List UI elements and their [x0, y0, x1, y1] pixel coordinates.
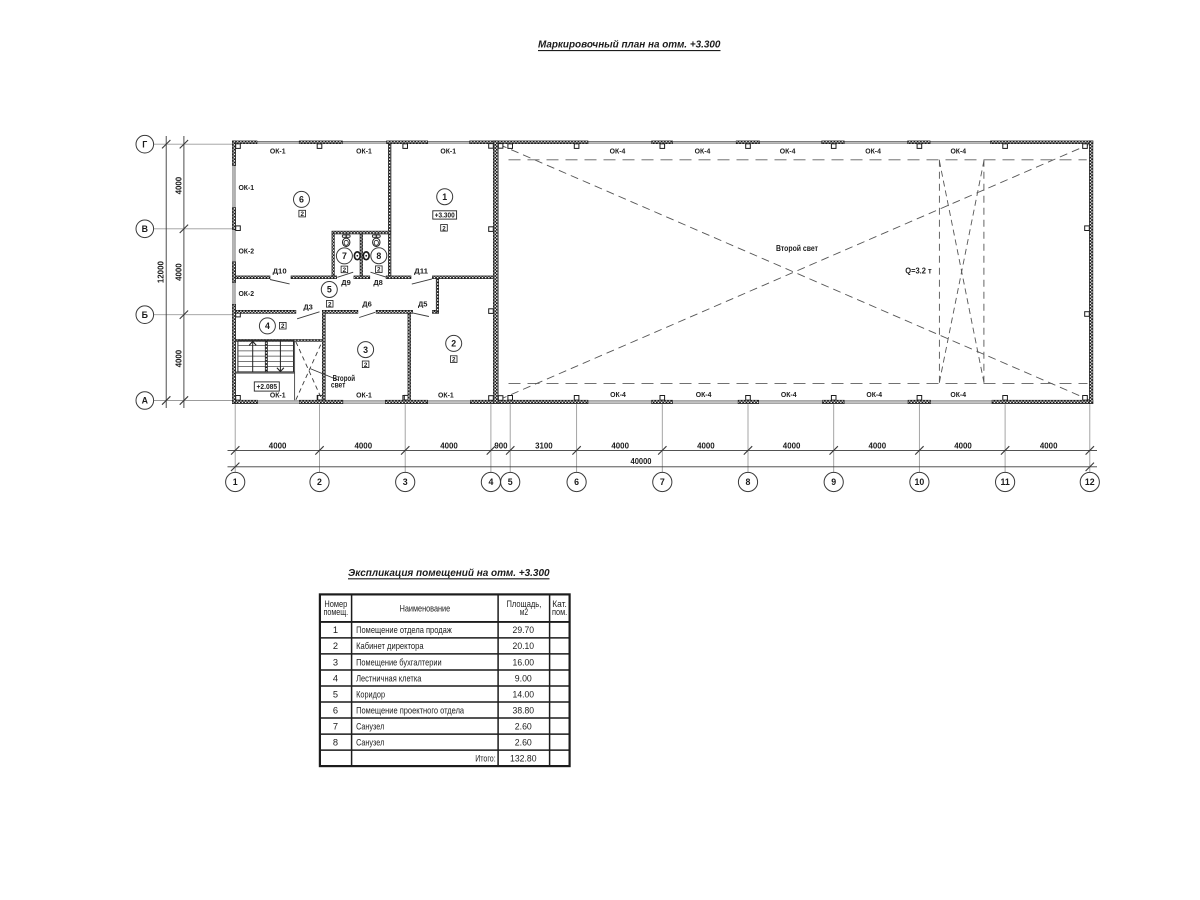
- svg-text:3: 3: [333, 657, 338, 667]
- svg-text:3: 3: [363, 345, 368, 355]
- svg-text:Кабинет директора: Кабинет директора: [356, 641, 424, 651]
- svg-text:В: В: [142, 224, 148, 234]
- svg-text:7: 7: [333, 721, 338, 731]
- svg-text:ОК-4: ОК-4: [780, 146, 796, 155]
- svg-text:Лестничная клетка: Лестничная клетка: [356, 673, 422, 683]
- svg-text:6: 6: [333, 705, 338, 715]
- svg-text:2: 2: [452, 357, 456, 364]
- svg-text:ОК-4: ОК-4: [950, 146, 966, 155]
- svg-text:132.80: 132.80: [510, 753, 537, 763]
- svg-text:2.60: 2.60: [515, 721, 532, 731]
- svg-text:ОК-4: ОК-4: [696, 390, 712, 399]
- svg-text:ОК-1: ОК-1: [356, 391, 372, 400]
- svg-text:4000: 4000: [174, 176, 183, 194]
- svg-text:8: 8: [376, 251, 381, 261]
- svg-text:А: А: [142, 396, 149, 406]
- svg-text:4: 4: [333, 673, 338, 683]
- svg-text:20.10: 20.10: [513, 641, 535, 651]
- svg-text:9.00: 9.00: [515, 673, 532, 683]
- svg-text:ОК-1: ОК-1: [438, 391, 454, 400]
- svg-text:ОК-4: ОК-4: [695, 146, 711, 155]
- svg-text:+2.085: +2.085: [257, 384, 278, 391]
- svg-text:4000: 4000: [611, 441, 629, 450]
- svg-text:пом.: пом.: [552, 607, 567, 617]
- svg-text:ОК-1: ОК-1: [238, 183, 254, 192]
- svg-text:Д8: Д8: [373, 278, 383, 287]
- svg-text:4000: 4000: [1040, 441, 1058, 450]
- svg-text:2: 2: [300, 211, 304, 218]
- svg-text:Второй свет: Второй свет: [776, 244, 818, 253]
- svg-text:29.70: 29.70: [513, 625, 535, 635]
- svg-text:40000: 40000: [631, 457, 652, 466]
- svg-text:4000: 4000: [869, 441, 887, 450]
- svg-text:2: 2: [451, 339, 456, 349]
- svg-text:14.00: 14.00: [513, 689, 535, 699]
- svg-text:4000: 4000: [174, 263, 183, 281]
- svg-text:ОК-4: ОК-4: [865, 146, 881, 155]
- svg-text:Наименование: Наименование: [400, 604, 451, 614]
- svg-text:2: 2: [442, 225, 446, 232]
- svg-text:11: 11: [1000, 477, 1009, 487]
- svg-text:10: 10: [915, 477, 925, 487]
- svg-text:ОК-4: ОК-4: [610, 146, 626, 155]
- svg-text:Б: Б: [142, 310, 149, 320]
- svg-text:16.00: 16.00: [513, 657, 535, 667]
- svg-text:м2: м2: [520, 607, 528, 617]
- svg-text:Д3: Д3: [303, 303, 313, 312]
- svg-text:Санузел: Санузел: [356, 737, 384, 747]
- svg-text:2: 2: [333, 641, 338, 651]
- svg-text:ОК-4: ОК-4: [781, 390, 797, 399]
- svg-text:2: 2: [364, 362, 368, 369]
- svg-text:6: 6: [574, 477, 579, 487]
- svg-text:2.60: 2.60: [515, 737, 532, 747]
- svg-text:Д6: Д6: [362, 300, 372, 309]
- svg-text:900: 900: [494, 441, 508, 450]
- svg-text:4000: 4000: [174, 349, 183, 367]
- svg-text:2: 2: [281, 323, 285, 330]
- svg-text:8: 8: [746, 477, 751, 487]
- svg-text:4: 4: [488, 477, 493, 487]
- svg-text:ОК-1: ОК-1: [270, 391, 286, 400]
- svg-text:Г: Г: [142, 139, 147, 149]
- svg-text:4000: 4000: [440, 441, 458, 450]
- svg-text:Экспликация помещений на отм.: Экспликация помещений на отм. +3.300: [348, 568, 550, 579]
- svg-text:3: 3: [403, 477, 408, 487]
- svg-text:9: 9: [831, 477, 836, 487]
- svg-text:12000: 12000: [156, 261, 165, 283]
- svg-text:8: 8: [333, 737, 338, 747]
- svg-text:12: 12: [1085, 477, 1095, 487]
- svg-text:ОК-1: ОК-1: [356, 147, 372, 156]
- svg-text:4000: 4000: [355, 441, 373, 450]
- svg-text:ОК-1: ОК-1: [270, 147, 286, 156]
- svg-text:Помещение проектного отдела: Помещение проектного отдела: [356, 705, 465, 715]
- svg-text:1: 1: [233, 477, 238, 487]
- svg-text:1: 1: [333, 625, 338, 635]
- svg-text:+3.300: +3.300: [435, 212, 455, 219]
- svg-text:2: 2: [317, 477, 322, 487]
- svg-text:Д10: Д10: [273, 267, 287, 276]
- svg-text:2: 2: [377, 267, 381, 274]
- svg-text:5: 5: [327, 285, 332, 295]
- svg-text:ОК-4: ОК-4: [610, 390, 626, 399]
- svg-text:Помещение отдела продаж: Помещение отдела продаж: [356, 625, 452, 635]
- svg-text:4: 4: [265, 321, 270, 331]
- svg-text:2: 2: [328, 301, 332, 308]
- svg-text:7: 7: [342, 251, 347, 261]
- svg-text:2: 2: [343, 267, 347, 274]
- svg-text:Итого:: Итого:: [475, 753, 496, 763]
- svg-text:1: 1: [442, 192, 447, 202]
- svg-text:Коридор: Коридор: [356, 689, 385, 699]
- svg-text:3100: 3100: [535, 441, 553, 450]
- svg-text:Маркировочный план на отм. +3.: Маркировочный план на отм. +3.300: [538, 40, 721, 51]
- svg-text:ОК-2: ОК-2: [238, 246, 254, 255]
- svg-text:Д9: Д9: [341, 278, 351, 287]
- svg-text:свет: свет: [331, 381, 346, 390]
- svg-text:помещ.: помещ.: [323, 607, 348, 617]
- svg-text:ОК-4: ОК-4: [950, 390, 966, 399]
- svg-text:7: 7: [660, 477, 665, 487]
- svg-text:4000: 4000: [954, 441, 972, 450]
- svg-text:Помещение бухгалтерии: Помещение бухгалтерии: [356, 657, 442, 667]
- svg-text:Q=3.2 т: Q=3.2 т: [905, 267, 932, 276]
- svg-text:4000: 4000: [783, 441, 801, 450]
- svg-text:ОК-4: ОК-4: [866, 390, 882, 399]
- svg-text:38.80: 38.80: [513, 705, 535, 715]
- svg-text:5: 5: [508, 477, 513, 487]
- svg-text:6: 6: [299, 195, 304, 205]
- svg-text:Санузел: Санузел: [356, 721, 384, 731]
- svg-text:ОК-1: ОК-1: [440, 147, 456, 156]
- svg-text:Д11: Д11: [414, 267, 428, 276]
- svg-text:4000: 4000: [269, 441, 287, 450]
- svg-text:Д5: Д5: [418, 300, 428, 309]
- svg-text:5: 5: [333, 689, 338, 699]
- svg-text:ОК-2: ОК-2: [238, 289, 254, 298]
- svg-text:4000: 4000: [697, 441, 715, 450]
